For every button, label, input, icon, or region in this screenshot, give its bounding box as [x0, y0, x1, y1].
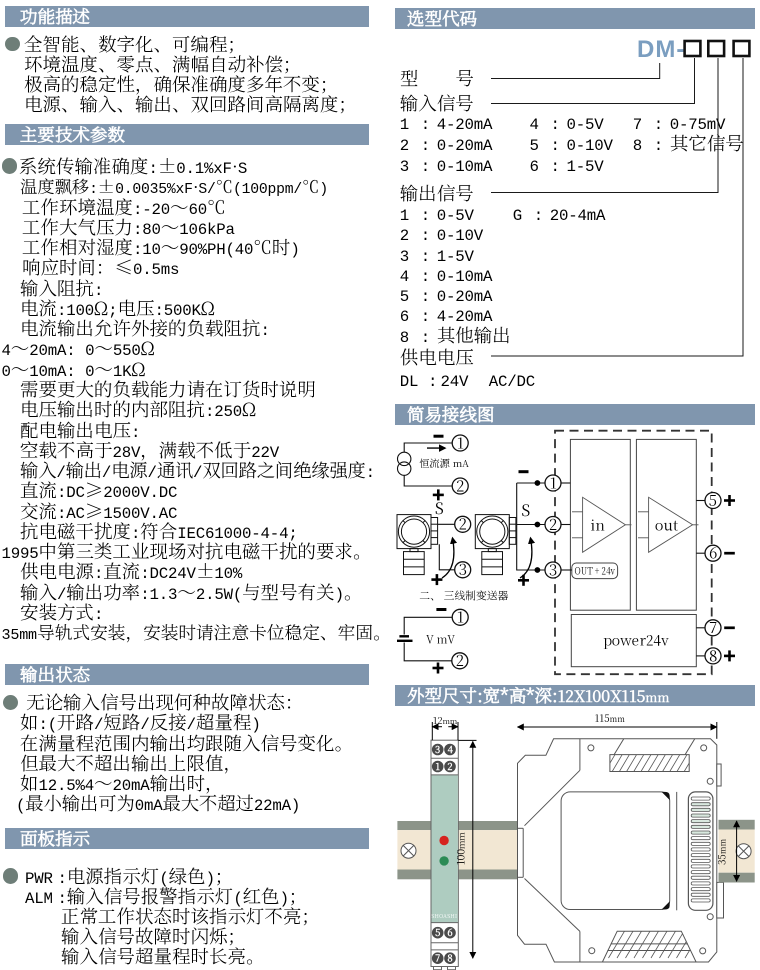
svg-text:8: 8: [446, 951, 452, 965]
svg-text:3: 3: [459, 559, 467, 580]
svg-text:OUT + 24v: OUT + 24v: [575, 562, 616, 577]
svg-text:S: S: [435, 496, 445, 519]
svg-text:7: 7: [435, 951, 441, 965]
svg-text:2: 2: [549, 514, 557, 535]
svg-text:2: 2: [456, 650, 464, 671]
svg-text:power24v: power24v: [603, 631, 669, 651]
svg-text:115mm: 115mm: [595, 710, 627, 725]
svg-text:二、 三线制变送器: 二、 三线制变送器: [419, 589, 508, 604]
svg-text:V mV: V mV: [426, 632, 455, 648]
svg-text:2: 2: [456, 475, 464, 496]
svg-text:2: 2: [459, 514, 467, 535]
svg-text:12mm: 12mm: [433, 713, 457, 727]
svg-text:6: 6: [446, 925, 452, 939]
svg-text:1: 1: [549, 472, 556, 493]
svg-text:1: 1: [457, 607, 464, 628]
svg-text:out: out: [655, 515, 679, 536]
svg-text:S: S: [522, 498, 532, 521]
svg-text:2: 2: [447, 759, 453, 773]
svg-text:3: 3: [549, 559, 557, 580]
svg-text:5: 5: [435, 925, 441, 939]
svg-text:4: 4: [446, 742, 453, 756]
svg-text:恒流源 mA: 恒流源 mA: [419, 455, 469, 470]
svg-text:1: 1: [435, 759, 440, 773]
svg-text:8: 8: [709, 645, 717, 666]
svg-text:in: in: [591, 515, 606, 536]
svg-text:1: 1: [457, 432, 464, 453]
svg-text:5: 5: [709, 490, 718, 511]
svg-text:100mm: 100mm: [454, 832, 469, 866]
svg-text:3: 3: [435, 742, 441, 756]
svg-text:7: 7: [709, 617, 717, 638]
svg-text:6: 6: [709, 543, 718, 564]
svg-text:SHOASHI: SHOASHI: [431, 912, 458, 920]
